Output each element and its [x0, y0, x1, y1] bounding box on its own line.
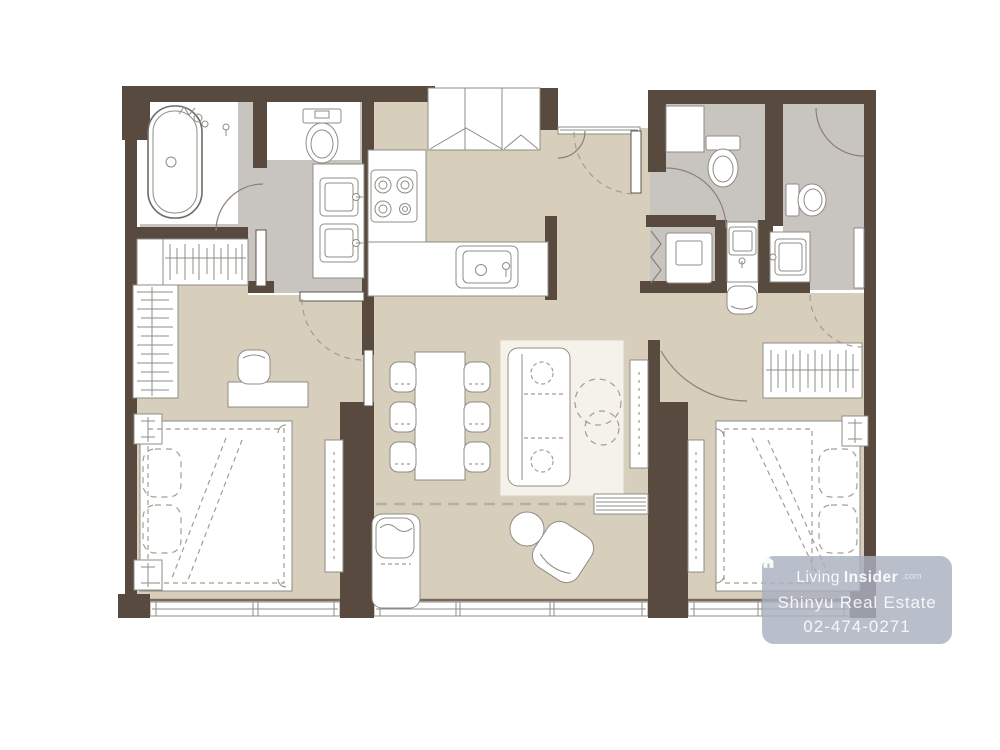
- wall-nook-top: [646, 215, 716, 227]
- left-sliding-panel: [364, 350, 373, 406]
- sofa: [508, 348, 570, 486]
- entrance-threshold: [558, 127, 640, 134]
- watermark-agency: Shinyu Real Estate: [762, 590, 952, 615]
- pier-bottom-left: [118, 594, 150, 618]
- wall-top-right: [650, 90, 876, 104]
- washer-cabinet: [666, 233, 712, 283]
- chaise-lounge: [372, 514, 420, 608]
- wall-closet-top: [128, 227, 248, 239]
- vanity-3: [770, 232, 810, 282]
- shower-glass-panel: [854, 228, 864, 288]
- wall-bath1-partition: [253, 100, 267, 168]
- dining-table: [415, 352, 465, 480]
- dressing-desk: [228, 382, 308, 407]
- toilet-1: [303, 109, 341, 163]
- left-bed: [140, 421, 292, 591]
- wall-top-left: [125, 86, 435, 102]
- wall-living-west: [362, 295, 374, 355]
- brand-insider: Insider: [844, 567, 898, 589]
- entrance-door-leaf: [631, 131, 641, 193]
- watermark: LivingInsider.com Shinyu Real Estate 02-…: [762, 556, 952, 644]
- brand-living: Living: [796, 567, 840, 589]
- double-vanity: [313, 164, 364, 278]
- bath1-door-leaf: [256, 230, 266, 286]
- wall-bath23-partition: [765, 104, 783, 226]
- floor-plan-page: LivingInsider.com Shinyu Real Estate 02-…: [0, 0, 1000, 750]
- stove: [371, 170, 417, 222]
- bathtub: [148, 106, 202, 218]
- dressing-stool: [238, 350, 270, 384]
- wall-bath-south-right: [762, 281, 810, 293]
- toilet-2: [706, 136, 740, 187]
- closet-rail-left: [133, 285, 178, 398]
- vanity-2: [727, 222, 758, 282]
- closet-corner-shelf: [137, 239, 163, 285]
- wardrobe-rail: [763, 343, 862, 398]
- pier-living-east: [648, 402, 688, 618]
- entry-shoe-cabinet: [666, 106, 704, 152]
- wall-entry-left-jamb: [540, 88, 558, 130]
- left-tv-console: [325, 440, 343, 572]
- kitchen-sink: [456, 246, 518, 288]
- left-suite-door-leaf: [300, 292, 364, 301]
- vanity-stool: [727, 286, 757, 314]
- south-windows: [137, 600, 864, 616]
- right-tv-console: [688, 440, 704, 572]
- wall-east: [864, 104, 876, 618]
- wall-entry-east: [648, 90, 666, 172]
- wall-living-east: [648, 340, 660, 404]
- kitchen-upper-cabinets: [428, 88, 540, 150]
- brand-tld: .com: [902, 565, 922, 590]
- closet-rail-top: [163, 239, 248, 285]
- media-unit: [594, 494, 648, 514]
- pier-living-west: [340, 402, 374, 618]
- right-nightstand: [842, 416, 868, 446]
- watermark-phone: 02-474-0271: [762, 615, 952, 639]
- toilet-3: [786, 184, 826, 216]
- watermark-brand: LivingInsider.com: [762, 565, 952, 590]
